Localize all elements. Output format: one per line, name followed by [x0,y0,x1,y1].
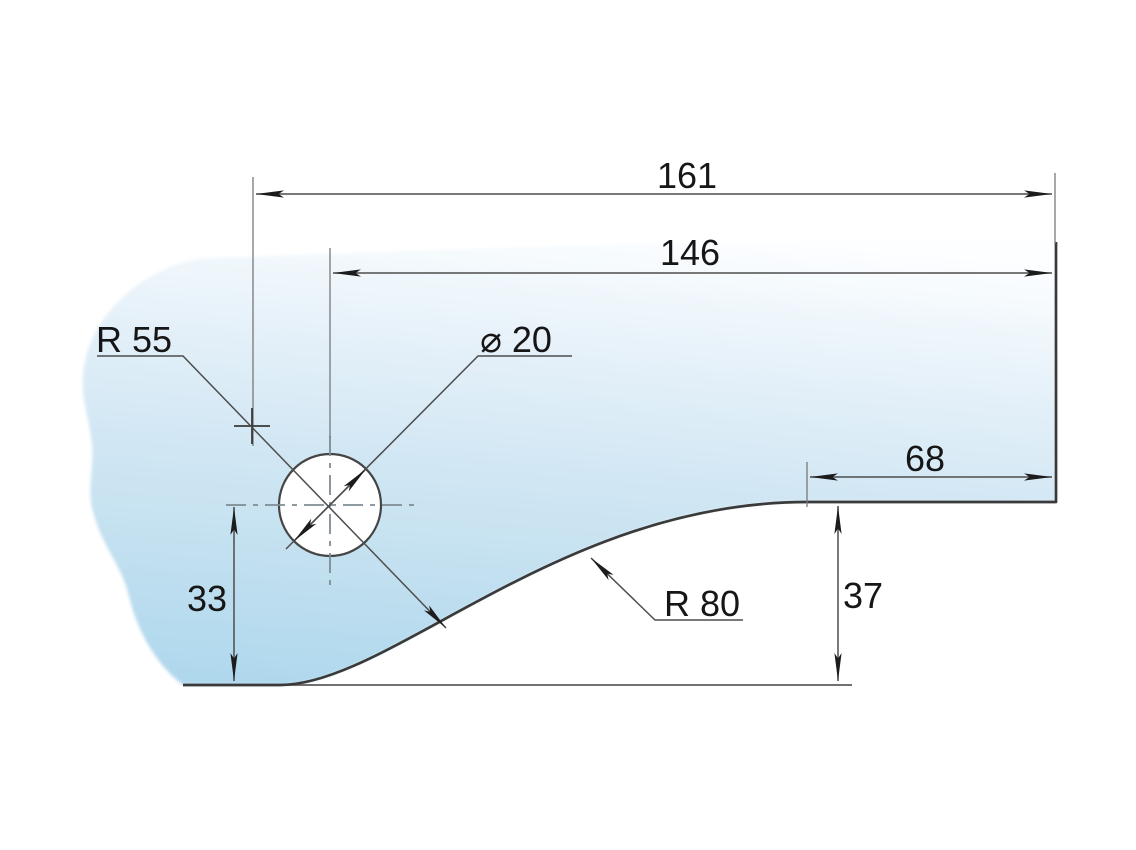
dim-label-left-radius: R 55 [96,319,172,360]
dim-label-right-height: 37 [843,575,883,616]
dim-label-right-radius: R 80 [664,583,740,624]
dim-label-hole-diameter: ⌀ 20 [480,319,552,360]
glass-panel-dimension-drawing: 161 146 68 37 33 R 55 ⌀ 20 R 80 [0,0,1136,850]
dim-label-overall-width: 161 [657,155,717,196]
dim-label-hole-height: 33 [187,578,227,619]
dim-label-flat-top: 68 [905,438,945,479]
dim-label-hole-to-right: 146 [660,232,720,273]
technical-drawing-canvas: 161 146 68 37 33 R 55 ⌀ 20 R 80 [0,0,1136,850]
